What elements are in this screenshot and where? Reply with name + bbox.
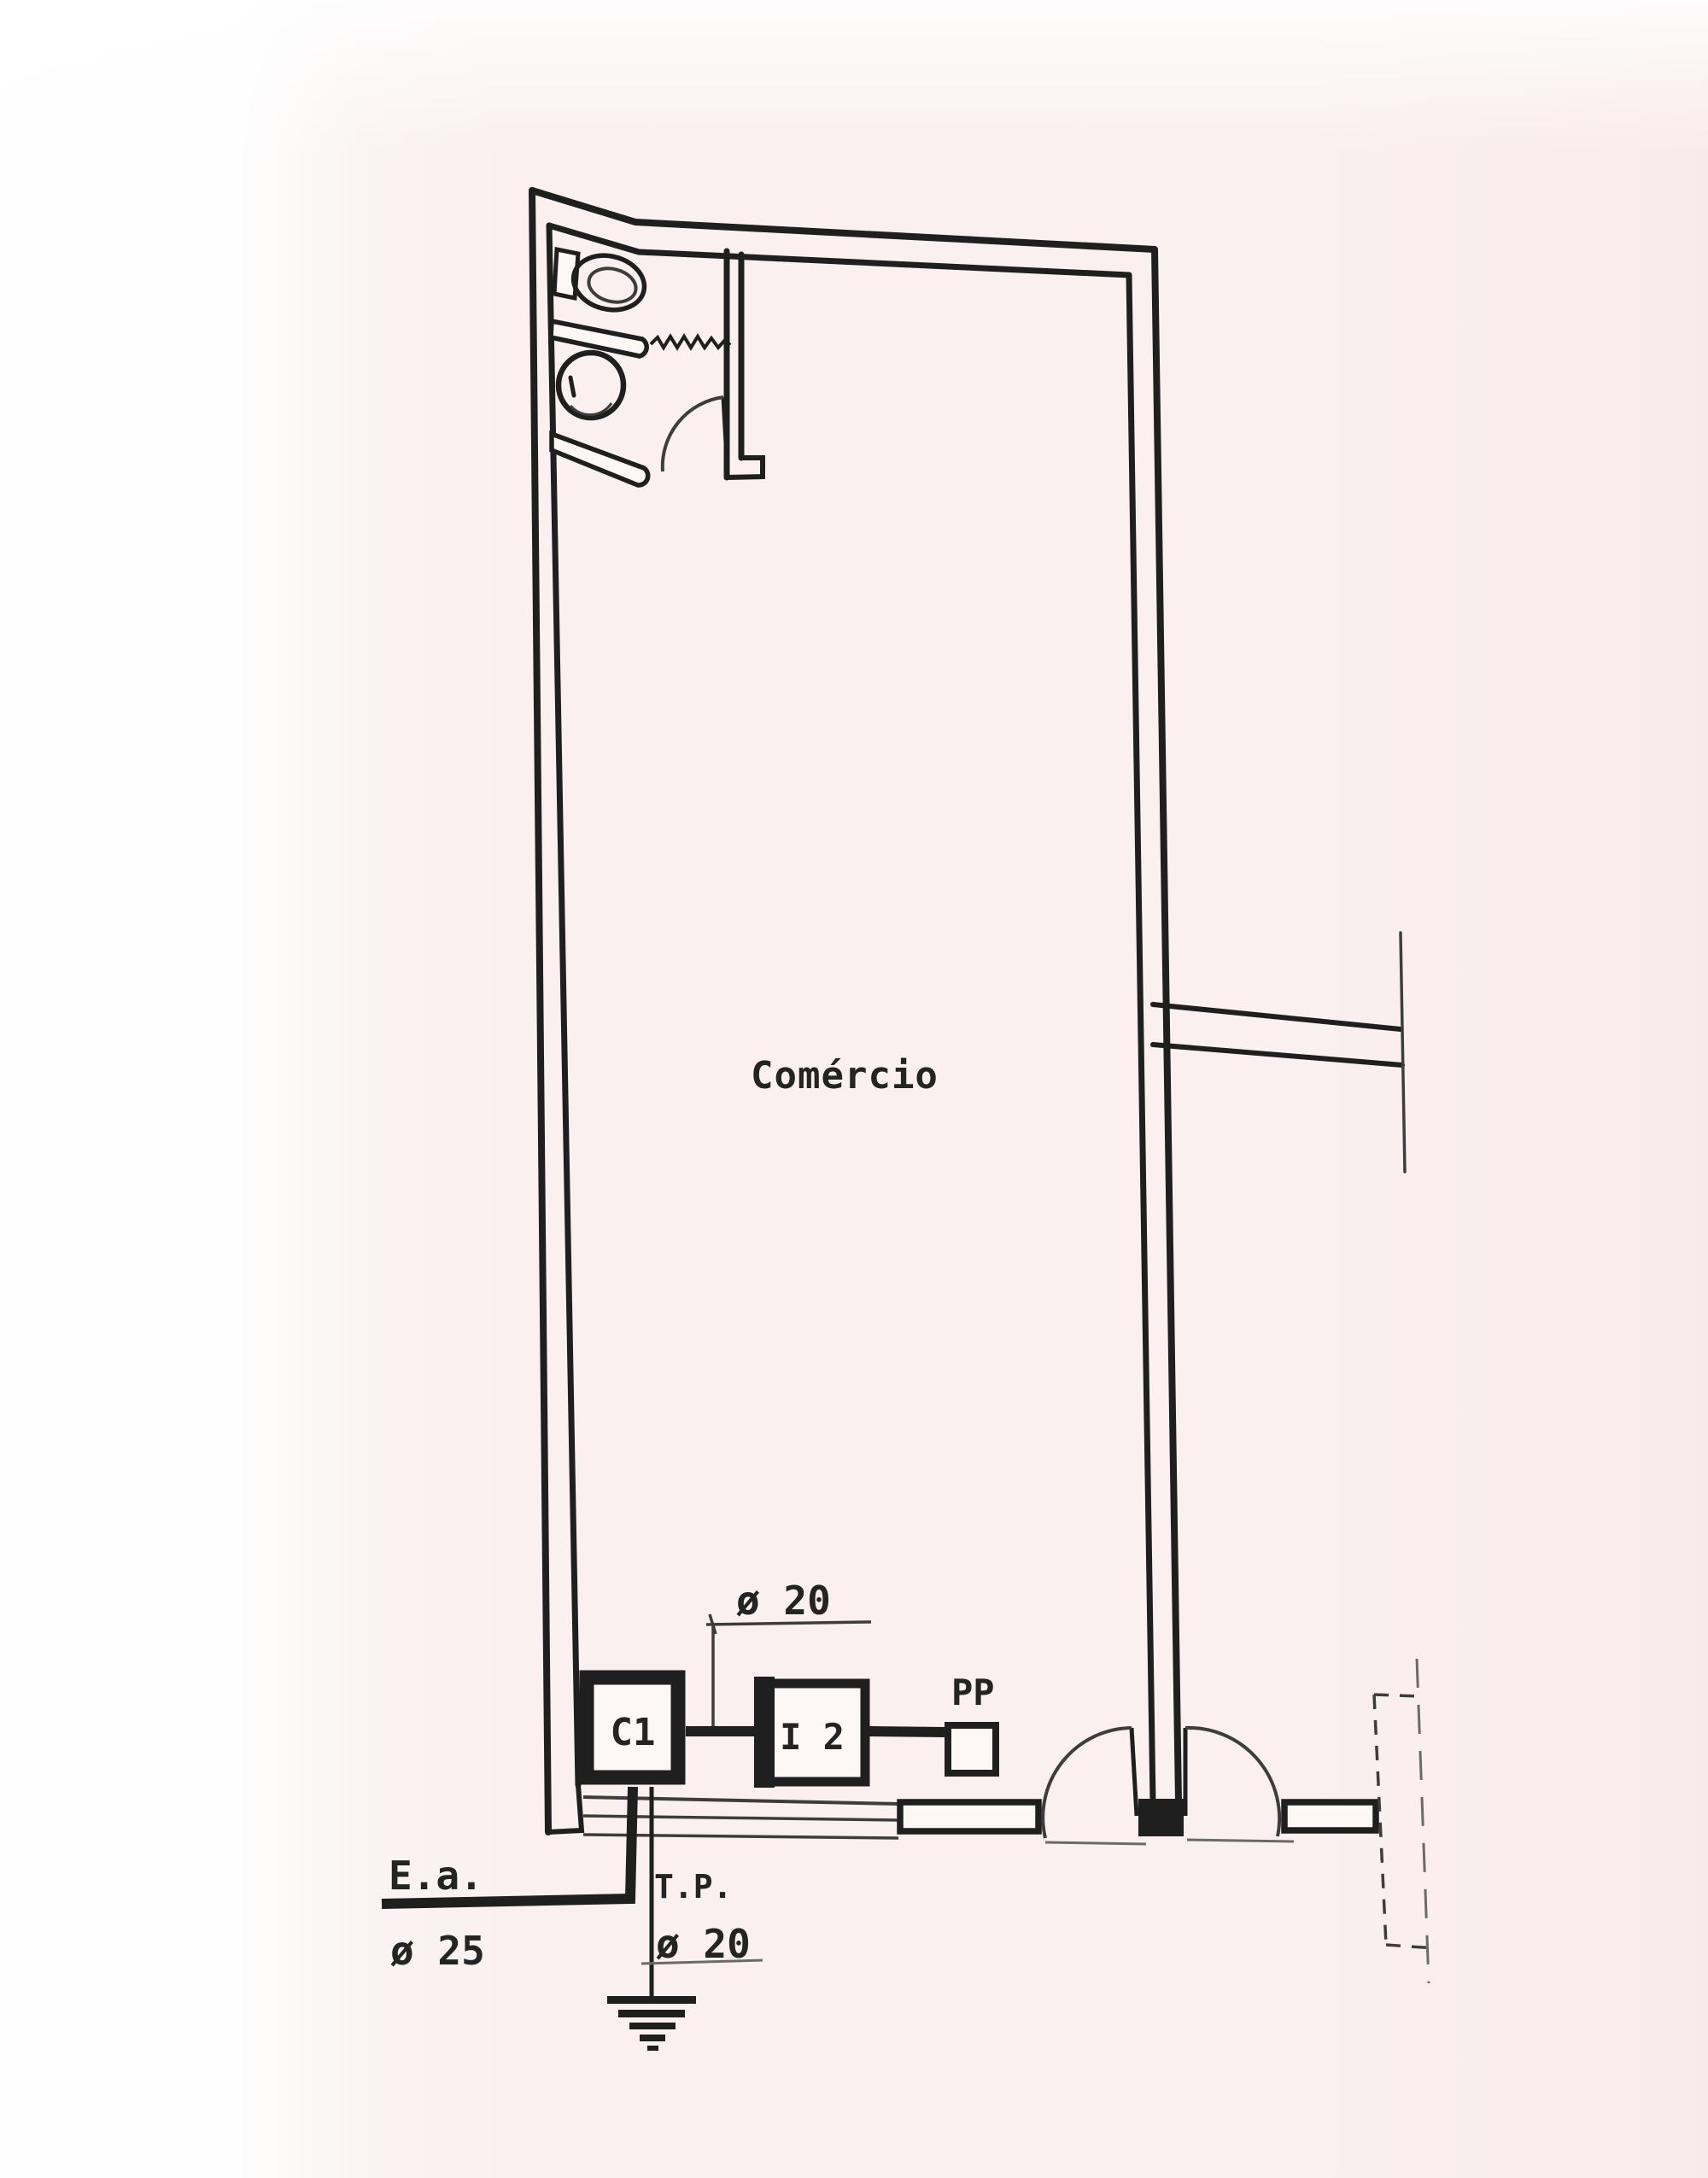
sink-tap — [570, 378, 574, 395]
pp-box — [948, 1725, 996, 1773]
exterior-wall-left — [532, 190, 548, 1832]
window-sill-right — [1284, 1802, 1376, 1830]
ea-diameter-label: ø 25 — [390, 1928, 485, 1974]
toilet-bowl — [568, 249, 651, 317]
floor-plan-svg: Comércio ø 20 C1 I 2 PP E.a. ø 25 T.P. ø… — [0, 0, 1708, 2178]
door-center-post — [1138, 1799, 1184, 1836]
i2-label: I 2 — [780, 1716, 845, 1758]
exterior-wall-top — [532, 190, 1155, 249]
scanned-plan-paper: Comércio ø 20 C1 I 2 PP E.a. ø 25 T.P. ø… — [0, 0, 1708, 2178]
sink-fixture — [559, 353, 623, 418]
earth-ground-symbol — [607, 1996, 696, 2051]
bathroom-right-wall — [727, 251, 763, 477]
tp-diameter-label: ø 20 — [656, 1921, 751, 1967]
entrance-door-right-arc — [1185, 1728, 1279, 1836]
door-threshold-left — [1045, 1842, 1146, 1844]
curtain-zigzag-line — [651, 337, 730, 348]
pp-label: PP — [951, 1672, 995, 1713]
c1-label: C1 — [611, 1711, 656, 1754]
corridor-wall-end-line — [1401, 933, 1405, 1172]
entrance-door-left-arc — [1043, 1728, 1132, 1838]
window-sill-left — [900, 1802, 1038, 1831]
wall-end-cap-left — [548, 1785, 582, 1832]
bathroom-door-swing-arc — [663, 397, 723, 471]
ea-label: E.a. — [389, 1853, 483, 1899]
exterior-wall-right-inner — [1129, 275, 1153, 1802]
entrance-door-left-leaf — [1132, 1728, 1137, 1816]
toilet-fixture — [554, 249, 650, 317]
sink-basin — [559, 353, 623, 418]
bathroom-door — [663, 397, 727, 471]
corridor-wall-right — [1153, 933, 1405, 1172]
tp-label: T.P. — [654, 1868, 733, 1906]
bathroom-partition-lower — [552, 434, 648, 485]
entrance-doors — [1043, 1728, 1294, 1844]
exterior-wall-right — [1155, 249, 1179, 1802]
dashed-partition-outline — [1374, 1659, 1435, 1983]
door-threshold-right — [1187, 1840, 1294, 1841]
room-label: Comércio — [751, 1054, 939, 1098]
bathroom — [551, 249, 763, 485]
top-conduit-diameter-label: ø 20 — [736, 1578, 831, 1624]
toilet-bowl-inner — [585, 264, 640, 307]
connector-i2-pp — [869, 1731, 945, 1732]
